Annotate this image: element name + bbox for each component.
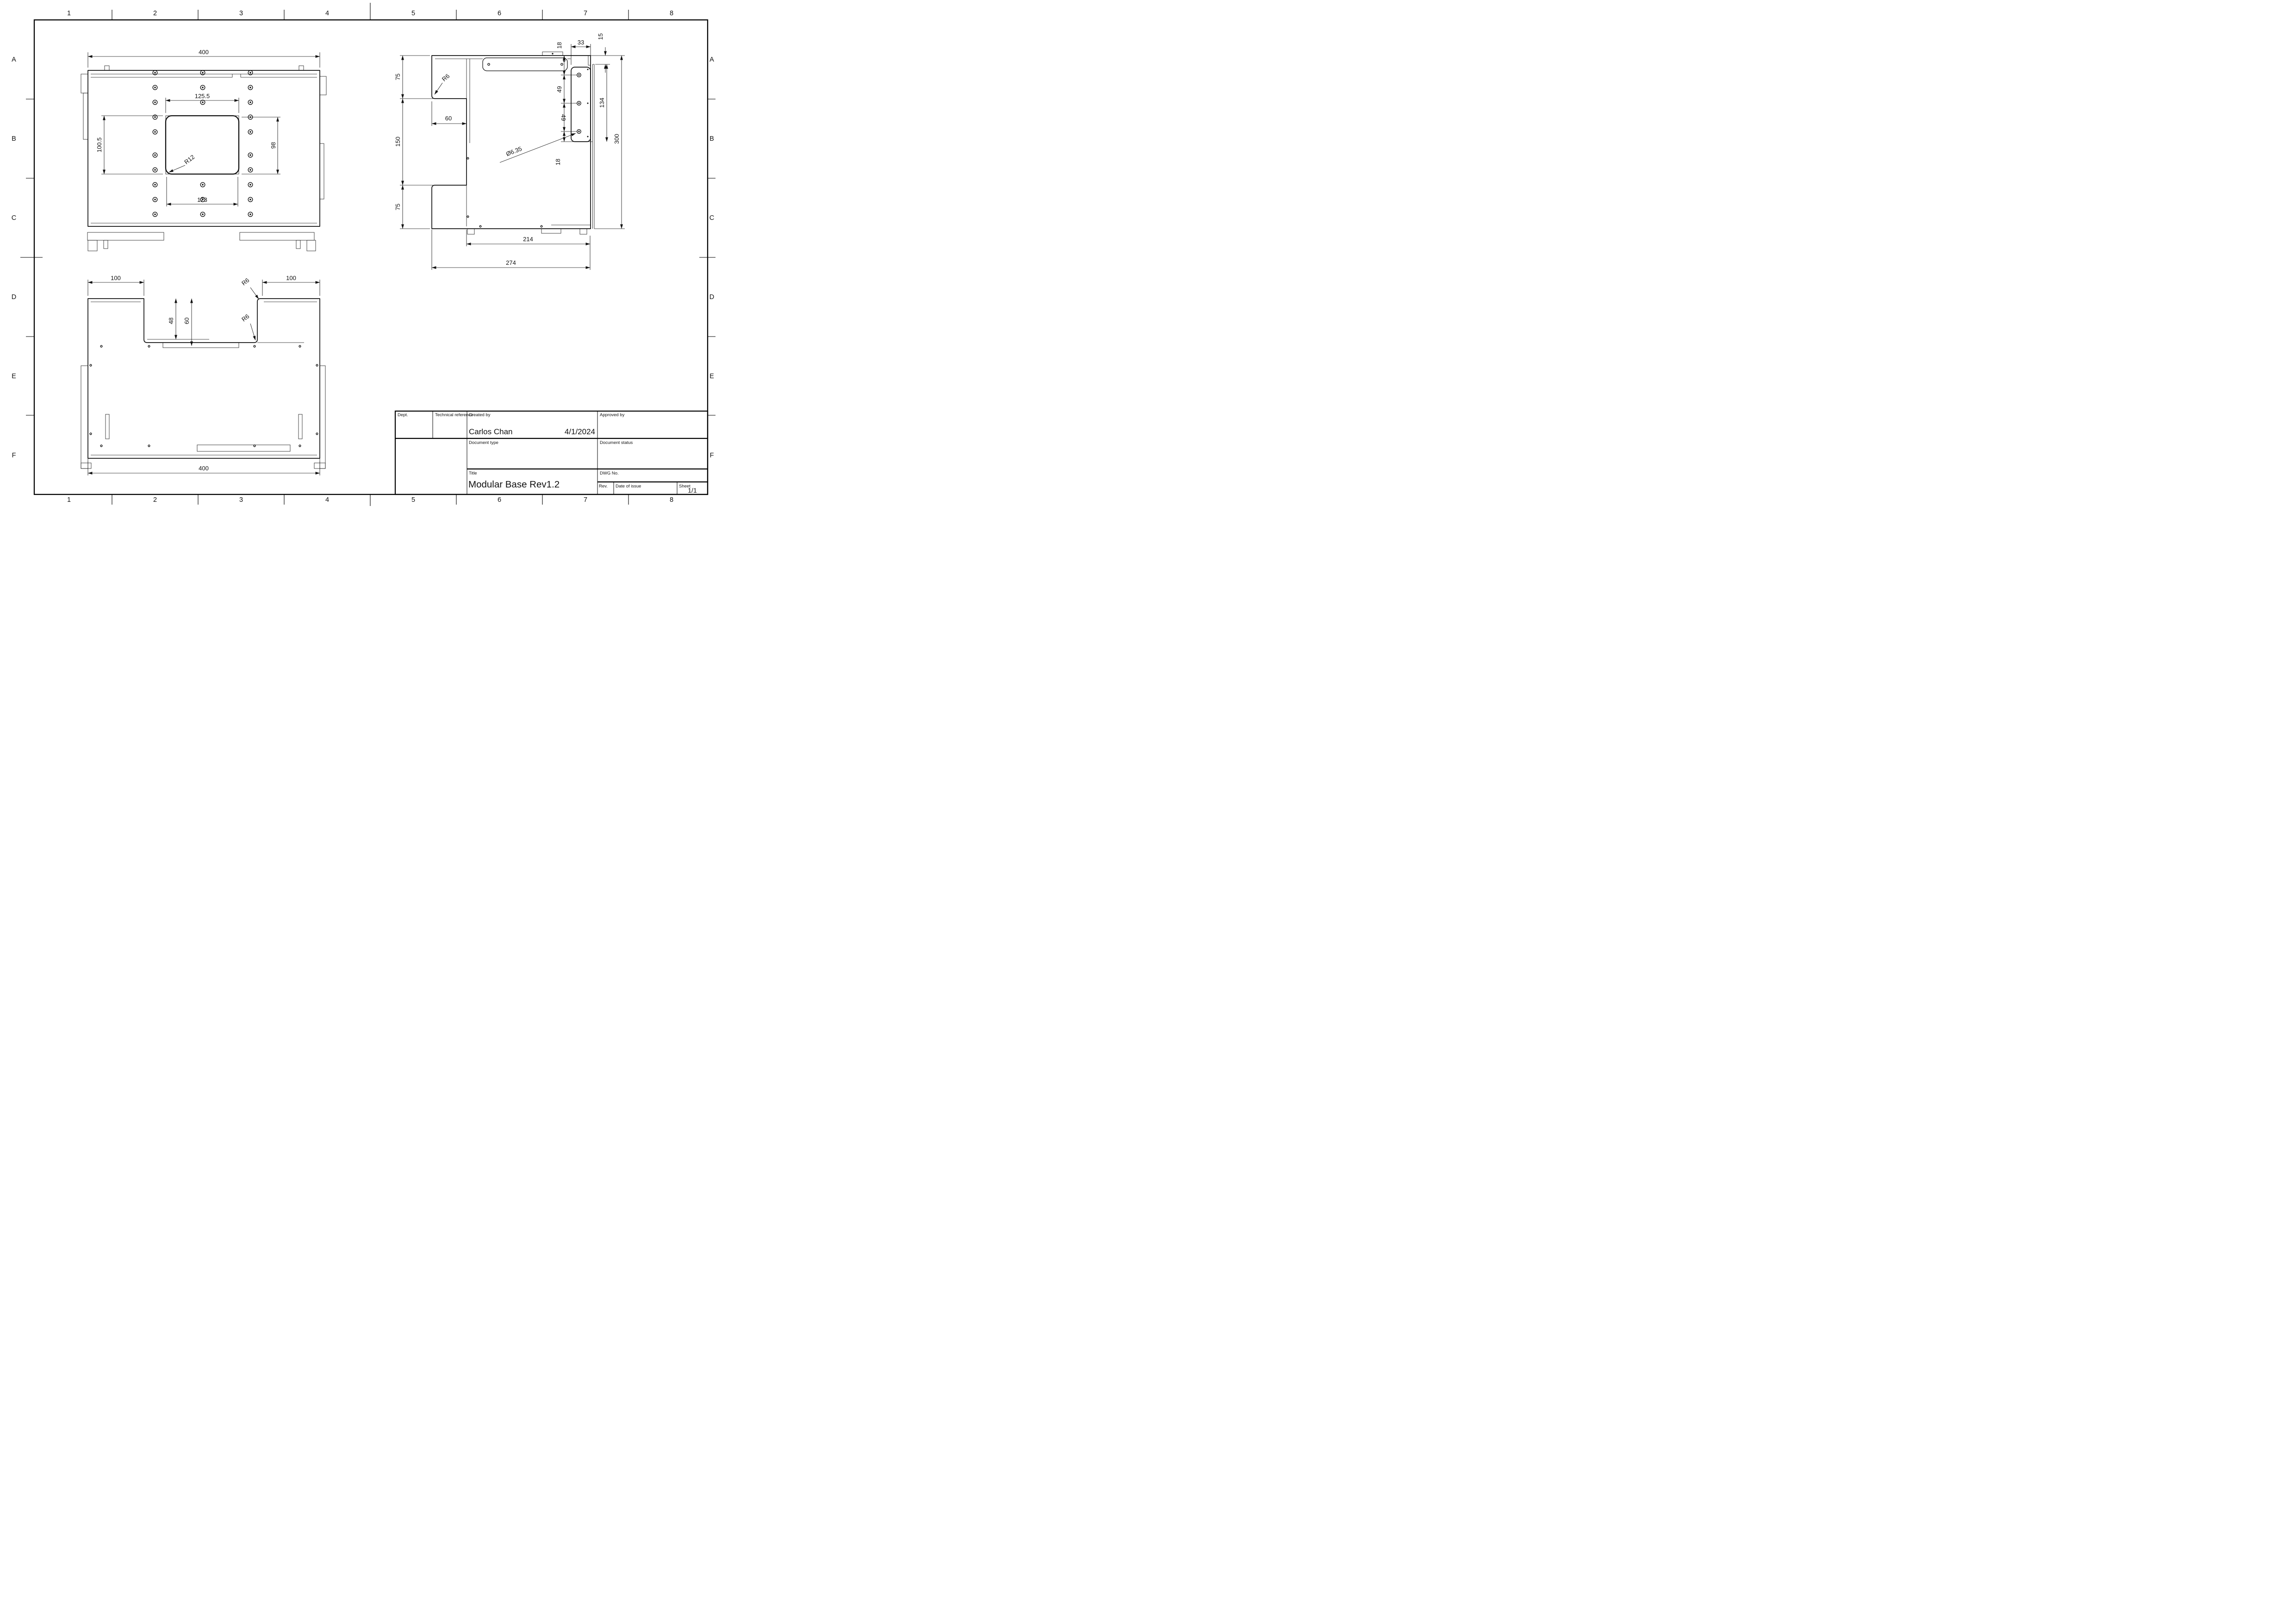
zone-col-3-top: 3 xyxy=(239,10,243,17)
hole-column-left xyxy=(153,70,157,217)
sheet-number: 1/1 xyxy=(688,487,697,494)
dim-hole-top-offset: 18 xyxy=(556,42,563,49)
dim-bracket-span: 134 xyxy=(598,98,605,108)
bottom-view-details xyxy=(81,302,325,468)
dwg-no-label: DWG No. xyxy=(600,471,619,476)
top-view: 400 125.5 123 100.5 98 R12 xyxy=(81,49,326,251)
zone-col-8-top: 8 xyxy=(670,10,673,17)
title-block: Dept. Technical reference Created by App… xyxy=(395,411,708,494)
zone-col-8-bottom: 8 xyxy=(670,496,673,504)
dim-cutout-width-bottom: 123 xyxy=(197,196,207,203)
zone-row-f-left: F xyxy=(12,452,16,459)
zone-row-a-left: A xyxy=(12,56,16,63)
approved-by-label: Approved by xyxy=(600,412,625,418)
top-flange-bar xyxy=(483,58,567,71)
zone-row-b-right: B xyxy=(709,135,714,143)
dim-middle-height: 150 xyxy=(394,137,401,147)
dim-notch-fillet: R6 xyxy=(441,72,451,82)
dim-bottom-width: 400 xyxy=(199,465,209,472)
document-status-label: Document status xyxy=(600,440,633,445)
bottom-view-outline xyxy=(88,299,320,458)
dim-right-flange: 100 xyxy=(286,275,296,281)
dim-total-depth: 274 xyxy=(506,259,516,266)
zone-col-7-bottom: 7 xyxy=(584,496,587,504)
zone-col-1-bottom: 1 xyxy=(67,496,71,504)
created-by-label: Created by xyxy=(469,412,491,418)
dim-top-offset: 15 xyxy=(597,33,604,40)
dim-total-height: 300 xyxy=(613,134,620,144)
dim-cutout-height-left: 100.5 xyxy=(96,137,103,153)
zone-col-6-top: 6 xyxy=(498,10,501,17)
dim-fillet-bottom: R6 xyxy=(240,312,250,323)
drawing-sheet: 1 2 3 4 5 6 7 8 1 2 3 4 5 6 7 8 A B C D … xyxy=(0,0,716,506)
dim-cutout-radius: R12 xyxy=(183,153,196,166)
dim-left-flange: 100 xyxy=(111,275,121,281)
zone-col-1-top: 1 xyxy=(67,10,71,17)
dept-label: Dept. xyxy=(398,412,408,418)
zone-col-7-top: 7 xyxy=(584,10,587,17)
date-of-issue-label: Date of issue xyxy=(616,484,641,489)
zone-ticks xyxy=(20,3,716,506)
zone-col-2-top: 2 xyxy=(153,10,157,17)
bottom-view-holes xyxy=(90,345,318,447)
zone-row-d-left: D xyxy=(12,294,16,301)
zone-row-e-left: E xyxy=(12,373,16,380)
side-view-outline xyxy=(432,56,591,229)
dim-hole-bottom-offset: 18 xyxy=(554,159,561,165)
zone-col-4-bottom: 4 xyxy=(325,496,329,504)
side-view-holes xyxy=(467,53,588,227)
dim-top-width: 400 xyxy=(199,49,209,56)
bottom-view-dimensions: 100 100 48 60 R6 R6 400 xyxy=(88,275,320,475)
hole-column-right xyxy=(248,70,253,217)
dim-hole-pitch-upper: 49 xyxy=(556,86,563,93)
engineering-drawing: 1 2 3 4 5 6 7 8 1 2 3 4 5 6 7 8 A B C D … xyxy=(0,0,716,506)
zone-row-b-left: B xyxy=(12,135,16,143)
created-date: 4/1/2024 xyxy=(565,427,595,436)
zone-col-6-bottom: 6 xyxy=(498,496,501,504)
dim-notch-depth-inner: 48 xyxy=(168,318,174,324)
zone-labels: 1 2 3 4 5 6 7 8 1 2 3 4 5 6 7 8 A B C D … xyxy=(12,10,714,504)
cutout-construction xyxy=(166,116,239,174)
dim-fillet-top: R6 xyxy=(240,276,250,287)
title-label: Title xyxy=(469,471,477,476)
dim-notch-depth: 60 xyxy=(445,115,452,122)
zone-col-3-bottom: 3 xyxy=(239,496,243,504)
side-view: 75 150 75 60 R6 18 33 15 49 49 134 300 Ø… xyxy=(394,33,625,270)
dim-upper-height: 75 xyxy=(394,74,401,80)
zone-row-c-left: C xyxy=(12,214,16,222)
side-view-internal-edges xyxy=(435,52,594,234)
zone-col-4-top: 4 xyxy=(325,10,329,17)
dim-cutout-height-right: 98 xyxy=(270,142,277,149)
document-type-label: Document type xyxy=(469,440,498,445)
bottom-view: 100 100 48 60 R6 R6 400 xyxy=(81,275,325,475)
cutout-rounded-square xyxy=(166,116,239,174)
dim-bracket-width: 33 xyxy=(578,39,584,46)
zone-row-e-right: E xyxy=(709,373,714,380)
dim-cutout-width-top: 125.5 xyxy=(195,93,210,100)
rev-label: Rev. xyxy=(599,484,608,489)
created-by-name: Carlos Chan xyxy=(469,427,513,436)
zone-col-2-bottom: 2 xyxy=(153,496,157,504)
sheet-frame: 1 2 3 4 5 6 7 8 1 2 3 4 5 6 7 8 A B C D … xyxy=(12,3,716,506)
zone-row-c-right: C xyxy=(709,214,714,222)
zone-row-a-right: A xyxy=(709,56,714,63)
dim-hole-diameter: Ø6.35 xyxy=(505,145,523,157)
zone-col-5-bottom: 5 xyxy=(411,496,415,504)
dim-lower-height: 75 xyxy=(394,204,401,210)
zone-row-f-right: F xyxy=(710,452,714,459)
technical-reference-label: Technical reference xyxy=(435,412,473,418)
dim-notch-depth-outer: 60 xyxy=(183,318,190,324)
dim-hole-pitch-lower: 49 xyxy=(560,114,567,121)
dim-inner-depth: 214 xyxy=(523,236,533,243)
drawing-title: Modular Base Rev1.2 xyxy=(468,479,560,490)
zone-col-5-top: 5 xyxy=(411,10,415,17)
zone-row-d-right: D xyxy=(709,294,714,301)
